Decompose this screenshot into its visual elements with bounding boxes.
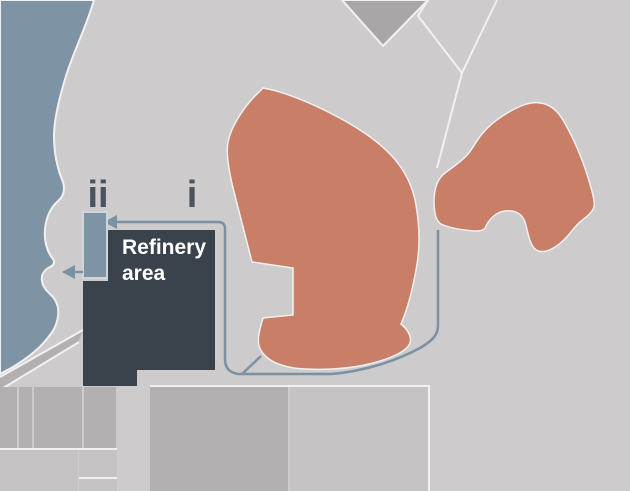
city-block	[0, 387, 17, 448]
city-block	[19, 387, 32, 448]
land-use-map: ii i Refinery area	[0, 0, 630, 491]
city-block-large	[150, 387, 288, 491]
marker-label-i: i	[187, 174, 198, 216]
city-block-light	[79, 450, 117, 477]
marker-label-ii: ii	[87, 174, 108, 216]
city-block	[84, 387, 116, 448]
city-block	[34, 387, 82, 448]
city-block-light	[290, 387, 429, 491]
city-block-light	[0, 450, 78, 491]
city-block-light	[79, 479, 117, 491]
pier-dock	[83, 212, 107, 278]
refinery-area-label-line2: area	[122, 262, 166, 285]
map-canvas: ii i Refinery area	[0, 0, 630, 491]
refinery-area-label-line1: Refinery	[122, 236, 206, 259]
